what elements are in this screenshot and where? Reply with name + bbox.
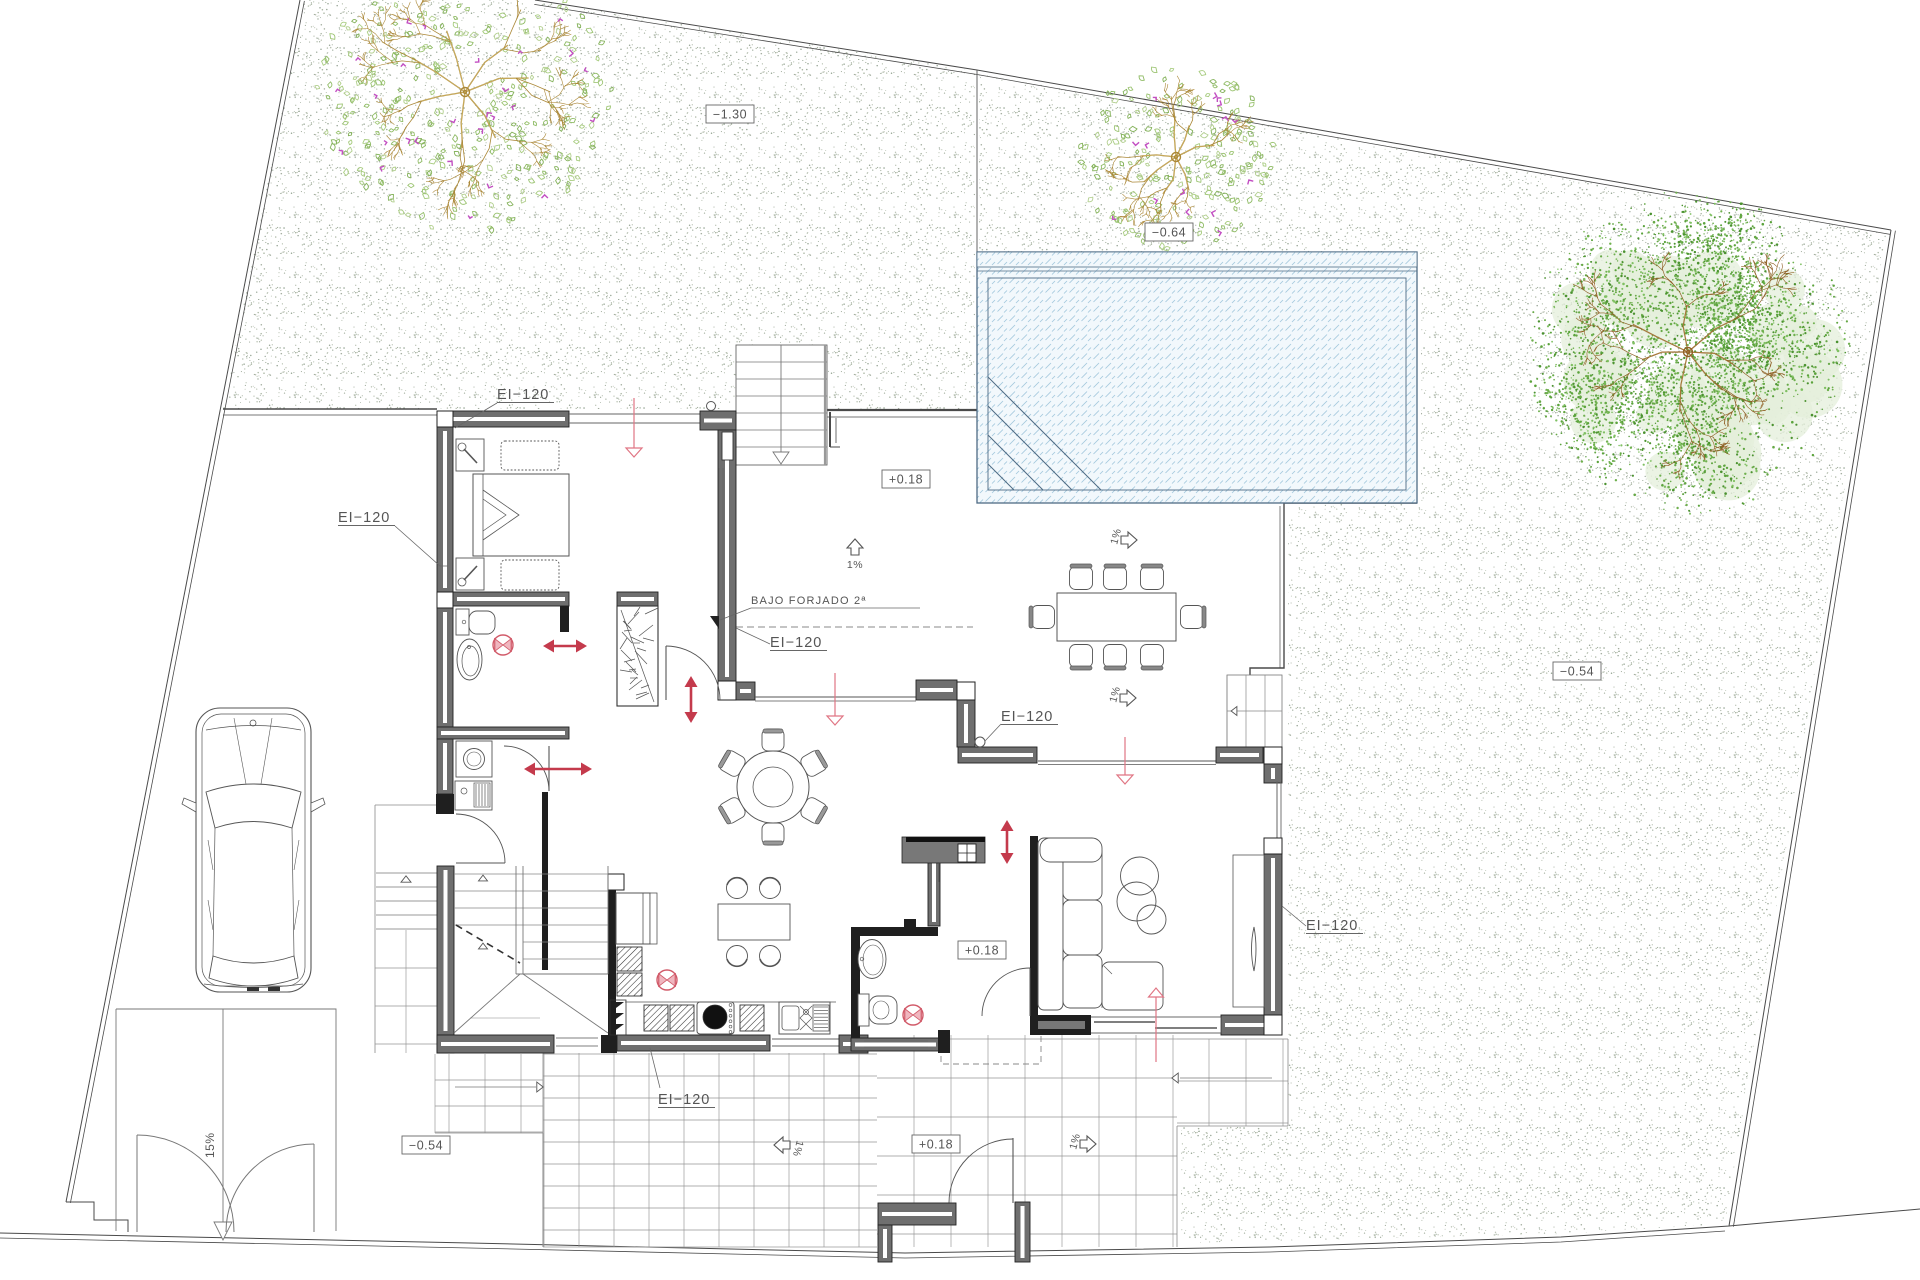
svg-text:EI−120: EI−120 — [338, 510, 390, 526]
svg-text:+0.18: +0.18 — [965, 944, 999, 958]
svg-text:−0.64: −0.64 — [1152, 226, 1186, 240]
svg-text:+0.18: +0.18 — [919, 1138, 953, 1152]
svg-text:1%: 1% — [847, 559, 863, 571]
svg-text:15%: 15% — [203, 1132, 217, 1158]
svg-text:EI−120: EI−120 — [658, 1092, 710, 1108]
svg-text:+0.18: +0.18 — [889, 473, 923, 487]
svg-text:EI−120: EI−120 — [497, 387, 549, 403]
svg-text:BAJO FORJADO 2ª: BAJO FORJADO 2ª — [751, 595, 867, 607]
svg-text:EI−120: EI−120 — [770, 635, 822, 651]
svg-text:−0.54: −0.54 — [409, 1139, 443, 1153]
svg-text:−0.54: −0.54 — [1560, 665, 1594, 679]
svg-text:−1.30: −1.30 — [713, 108, 747, 122]
svg-text:EI−120: EI−120 — [1001, 709, 1053, 725]
svg-text:EI−120: EI−120 — [1306, 918, 1358, 934]
